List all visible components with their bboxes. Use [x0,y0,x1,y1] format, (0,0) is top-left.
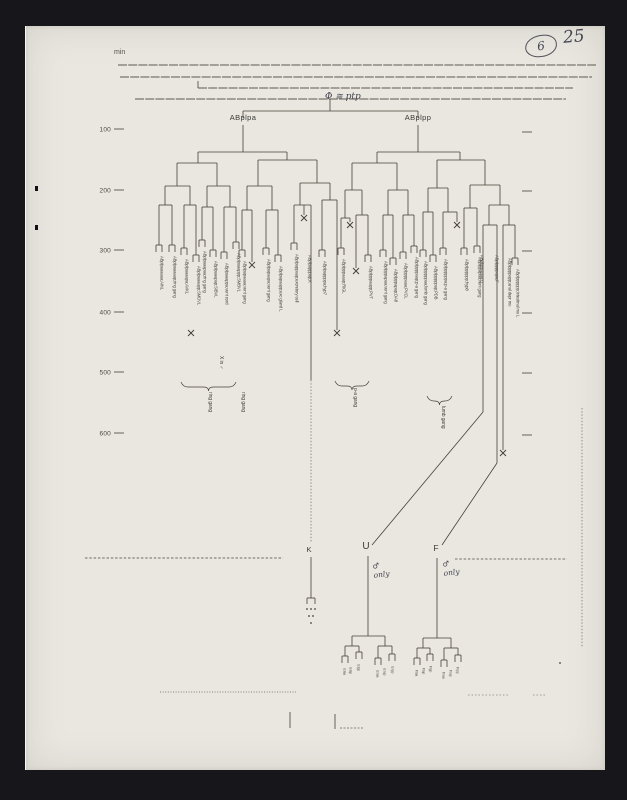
fate-annotation-label: ring gang [240,392,246,412]
leaf-cell-label: ABplpaaappp;SMBVL [237,253,242,293]
postembryonic-leaf-label: F.laa [415,670,419,677]
leaf-cell-label: ABplpappppa;hyp7 [323,261,328,296]
group-brace [181,382,236,391]
leaf-cell-label: ABplpapaapp;exc gland L [279,266,284,312]
margin-speck [35,186,38,191]
leaf-cell-label: ABplpaaappa;vent cord [225,263,230,305]
group-brace [427,396,452,405]
cell-label-K: K [306,545,311,554]
handwritten-root-annotation: Φ ≅ ptp [325,92,361,102]
lineage-root-label-abplpa: ABplpa [230,113,257,122]
leaf-cell-label: ABplpaaaapa;AVKL [185,259,190,295]
leaf-cell-label: ABplppppapa;F [495,255,500,283]
postembryonic-leaf-label: F.raa [442,672,446,679]
margin-speck [35,225,38,230]
cell-label-F: F [433,543,438,553]
connector-diagonal [442,463,497,545]
leaf-cell-label: ABplpppaapp;PVT [369,266,374,299]
fate-annotation-label: ring gang [207,392,213,412]
postembryonic-leaf-label: U.laa [343,668,347,675]
axis-tick-label: 300 [100,247,112,254]
leaf-cell-label: ABplpppppp;intestinal mu L [516,269,521,318]
leaf-cell-label: ABplppppaap;p-a gang [415,257,420,299]
leaf-cell-label: ABplpppppap;PDB [434,266,439,300]
leaf-cell-label: ABplpppppp;hyp8 [465,259,470,291]
lineage-figure-svg: ABplpaaaaaa;AINLABplpaaaaap;ring gangABp… [0,0,627,800]
leaf-cell-label: ABplpppaaaa;U [480,255,485,283]
continuation-dot [310,622,312,624]
handwritten-page-number: 25 [562,26,585,48]
fate-annotation-label: p-a gang [352,388,358,407]
postembryonic-leaf-label: U.lap [349,667,353,674]
scanned-page-stage: ABplpaaaaaa;AINLABplpaaaaap;ring gangABp… [0,0,627,800]
leaf-cell-label: ABplpapaaaa;vent gang [243,261,248,304]
postembryonic-leaf-label: U.rap [383,668,387,676]
axis-tick-label: 500 [100,369,112,376]
leaf-cell-label: ABplpapaapa;vent gang [267,259,272,302]
time-axis-unit-label: min [114,49,125,56]
postembryonic-leaf-label: F.rap [449,670,453,677]
postembryonic-leaf-label: U.raa [376,670,380,678]
continuation-dot [310,608,312,610]
axis-tick-label: 100 [100,126,112,133]
continuation-dot [314,608,316,610]
cell-label-U: U [362,541,369,552]
leaf-cell-label: ABplpppapaa;vent gang [384,261,389,304]
leaf-cell-label: ABplpppaaap;RIGL [342,259,347,294]
leaf-cell-label: ABplpapppap;K [308,255,313,283]
figure-number-text: 6 [536,39,546,54]
axis-tick-label: 400 [100,309,112,316]
continuation-dot [306,608,308,610]
leaf-cell-label: ABplpaaapaa;ring gang [203,251,208,293]
leaf-cell-label: ABplppppppa;p-a gang [444,259,449,301]
postembryonic-leaf-label: U.lpp [357,664,361,671]
axis-tick-label: 200 [100,187,112,194]
leaf-cell-label: ABplpppapap;DA8 [394,269,399,303]
axis-tick-label: 600 [100,430,112,437]
leaf-cell-label: ABplppppapp;anal depr mu [508,258,513,307]
leaf-cell-label: ABplpaaaapp;SMDVL [197,266,202,306]
lineage-root-label-abplpp: ABplpp [405,113,432,122]
postembryonic-leaf-label: U.rpp [391,666,395,674]
postembryonic-leaf-label: F.lpp [429,666,433,673]
continuation-dot [308,615,310,617]
postembryonic-leaf-label: F.lap [422,668,426,675]
leaf-cell-label: ABplpappaap;excretory cell [295,254,300,303]
connector-diagonal [372,412,483,545]
group-brace [335,381,369,390]
leaf-cell-label: ABplpaaapap;SIBVL [214,261,219,298]
handwritten-male-only-note-u: ♂ only [372,560,389,580]
continuation-dot [559,662,561,664]
leaf-cell-label: ABplpaaaaaa;AINL [160,256,165,291]
leaf-cell-label: ABplpppppaa;lumb gang [424,261,429,306]
postembryonic-leaf-label: F.rpp [456,667,460,674]
continuation-dot [312,615,314,617]
handwritten-male-only-note-f: ♂ only [442,558,459,578]
fate-annotation-label: X in ♂ [218,356,224,369]
leaf-cell-label: ABplppppaaa;PVCL [404,263,409,299]
leaf-cell-label: ABplpaaaaap;ring gang [173,256,178,298]
fate-annotation-label: lumb gang [440,406,446,429]
